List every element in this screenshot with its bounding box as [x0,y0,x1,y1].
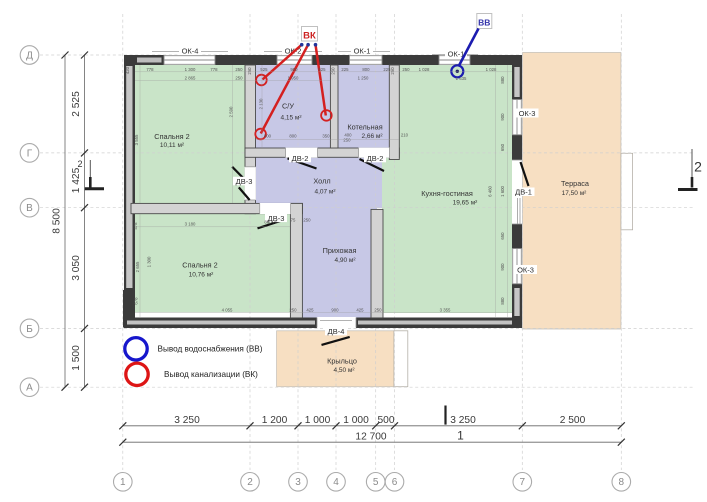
svg-text:210: 210 [401,133,409,138]
svg-text:10,11 м²: 10,11 м² [160,142,185,149]
svg-text:Г: Г [27,148,33,159]
svg-text:420: 420 [125,66,130,74]
svg-text:Спальня 2: Спальня 2 [182,261,217,270]
svg-text:900: 900 [331,308,339,313]
svg-text:2 130: 2 130 [259,98,264,109]
svg-text:1 600: 1 600 [500,186,505,197]
svg-text:525: 525 [260,67,268,72]
svg-text:800 75: 800 75 [264,220,278,225]
svg-text:ОК-3: ОК-3 [519,109,536,118]
svg-text:ДВ-4: ДВ-4 [328,327,345,336]
svg-text:250: 250 [303,218,311,223]
svg-text:2 865: 2 865 [185,76,196,81]
svg-text:250: 250 [374,308,382,313]
svg-text:3 180: 3 180 [185,222,196,227]
svg-text:250: 250 [247,67,252,75]
svg-text:10,76 м²: 10,76 м² [189,272,215,279]
svg-text:800: 800 [362,67,370,72]
svg-text:ВК: ВК [303,31,316,42]
svg-text:Холл: Холл [313,177,330,186]
svg-text:Терраса: Терраса [561,179,590,188]
svg-text:4,15 м²: 4,15 м² [280,115,302,122]
svg-text:2: 2 [247,477,253,488]
svg-text:4: 4 [333,477,339,488]
svg-text:425: 425 [356,308,364,313]
svg-text:225: 225 [341,67,349,72]
svg-text:250: 250 [402,67,410,72]
svg-text:ОК-1: ОК-1 [448,50,465,59]
svg-text:ОК-3: ОК-3 [517,266,534,275]
svg-text:3 250: 3 250 [450,415,476,426]
svg-text:425: 425 [306,308,314,313]
svg-text:250: 250 [235,76,243,81]
svg-text:250: 250 [330,67,335,75]
svg-text:2 525: 2 525 [71,91,82,117]
svg-text:3 050: 3 050 [71,255,82,281]
svg-text:1 950: 1 950 [288,76,299,81]
svg-text:12 700: 12 700 [355,432,386,443]
svg-text:В: В [26,203,33,214]
svg-text:900: 900 [500,263,505,271]
svg-text:ОК-1: ОК-1 [354,47,371,56]
svg-text:4 055: 4 055 [222,308,233,313]
svg-text:1 300: 1 300 [147,256,152,267]
svg-text:А: А [26,383,33,394]
svg-text:75: 75 [291,218,296,223]
svg-text:250: 250 [343,138,351,143]
svg-text:880: 880 [500,76,505,84]
svg-text:4,07 м²: 4,07 м² [314,189,336,196]
svg-text:778: 778 [210,67,218,72]
svg-text:2 500: 2 500 [560,415,586,426]
svg-text:2: 2 [77,159,82,169]
svg-text:ДВ-1: ДВ-1 [515,188,532,197]
svg-text:525: 525 [318,67,326,72]
svg-text:1: 1 [120,477,126,488]
svg-text:8 500: 8 500 [52,208,63,234]
svg-text:4,90 м²: 4,90 м² [334,257,356,264]
svg-text:1 000: 1 000 [343,415,369,426]
svg-text:Б: Б [26,324,33,335]
svg-text:3 355: 3 355 [440,308,451,313]
svg-text:250: 250 [235,67,243,72]
svg-text:1 000: 1 000 [305,415,331,426]
svg-text:1 250: 1 250 [358,76,369,81]
svg-text:1 200: 1 200 [262,415,288,426]
svg-text:800: 800 [289,134,297,139]
svg-text:2: 2 [694,159,702,175]
svg-text:6: 6 [392,477,398,488]
svg-text:5: 5 [373,477,379,488]
svg-text:350: 350 [322,134,330,139]
svg-text:1 028: 1 028 [419,67,430,72]
svg-text:3: 3 [295,477,301,488]
svg-text:3 250: 3 250 [174,415,200,426]
svg-text:ВВ: ВВ [478,17,490,27]
svg-text:6 460: 6 460 [488,186,493,197]
svg-text:650: 650 [500,232,505,240]
svg-text:Спальня 2: Спальня 2 [154,132,189,141]
svg-text:1 425: 1 425 [71,167,82,193]
svg-text:800: 800 [264,134,272,139]
svg-text:Крыльцо: Крыльцо [327,357,357,366]
svg-text:ДВ-2: ДВ-2 [292,154,309,163]
svg-text:500: 500 [378,415,395,426]
svg-text:8: 8 [619,477,625,488]
svg-text:17,50 м²: 17,50 м² [562,190,588,197]
svg-text:Вывод водоснабжения (ВВ): Вывод водоснабжения (ВВ) [158,345,263,354]
svg-text:Котельная: Котельная [347,123,382,132]
svg-text:2 655: 2 655 [135,261,140,272]
svg-text:19,65 м²: 19,65 м² [453,200,479,207]
svg-text:7: 7 [520,477,526,488]
svg-text:678: 678 [134,297,139,305]
svg-text:3 555: 3 555 [134,134,139,145]
svg-text:1 300: 1 300 [185,67,196,72]
svg-text:250: 250 [390,67,395,75]
svg-text:Вывод канализации (ВК): Вывод канализации (ВК) [164,370,258,379]
svg-text:2,66 м²: 2,66 м² [361,133,383,140]
svg-text:900: 900 [290,67,298,72]
svg-text:880: 880 [500,297,505,305]
svg-text:250: 250 [289,308,297,313]
svg-text:650: 650 [500,143,505,151]
svg-text:Д: Д [26,50,33,61]
svg-text:778: 778 [146,67,154,72]
svg-text:ДВ-3: ДВ-3 [236,177,253,186]
svg-text:1 500: 1 500 [71,345,82,371]
svg-text:1: 1 [457,429,464,443]
svg-text:ДВ-2: ДВ-2 [367,154,384,163]
svg-text:4,50 м²: 4,50 м² [333,367,355,374]
svg-text:Кухня-гостиная: Кухня-гостиная [421,189,473,198]
svg-text:ОК-4: ОК-4 [182,47,199,56]
svg-text:С/У: С/У [282,102,294,111]
svg-text:1 635: 1 635 [456,76,467,81]
svg-text:478: 478 [133,222,138,230]
svg-text:900: 900 [500,113,505,121]
svg-text:Прихожая: Прихожая [323,246,357,255]
